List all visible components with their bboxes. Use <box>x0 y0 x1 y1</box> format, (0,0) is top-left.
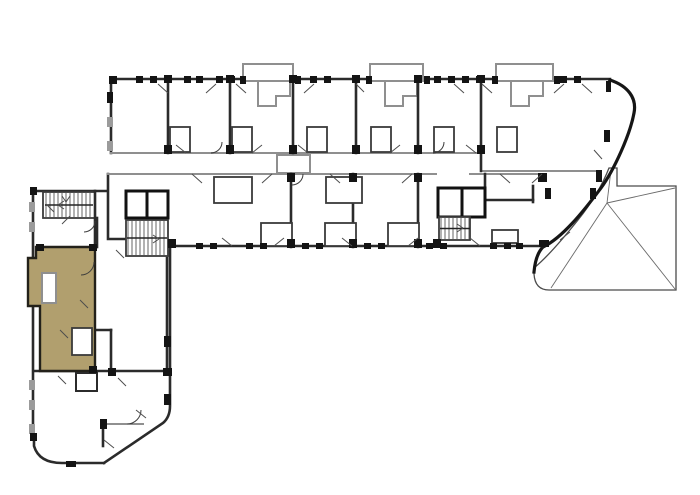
highlighted-unit-group <box>28 247 97 391</box>
roof-terrace <box>534 168 676 290</box>
north-balconies <box>243 64 553 106</box>
floor-plan-canvas <box>0 0 700 495</box>
corridor-lightwell <box>277 155 310 173</box>
balcony-recess-1 <box>258 82 290 106</box>
west-wing-east-wall <box>104 246 170 463</box>
balcony-recess-3 <box>511 82 543 106</box>
party-walls <box>168 80 481 247</box>
balcony-bump-1 <box>243 64 293 81</box>
west-wing-south-wall <box>34 437 104 463</box>
terrace-outline <box>534 168 676 290</box>
door-swings <box>81 142 444 424</box>
unit-balcony-recess <box>42 273 56 303</box>
wing-west-wall-lower <box>108 174 127 239</box>
unit-bathroom <box>72 328 92 355</box>
balcony-bump-3 <box>496 64 553 81</box>
east-rooms <box>485 174 533 217</box>
corridor <box>108 153 601 174</box>
unit-shaft <box>76 373 97 391</box>
balcony-recess-2 <box>385 82 417 106</box>
